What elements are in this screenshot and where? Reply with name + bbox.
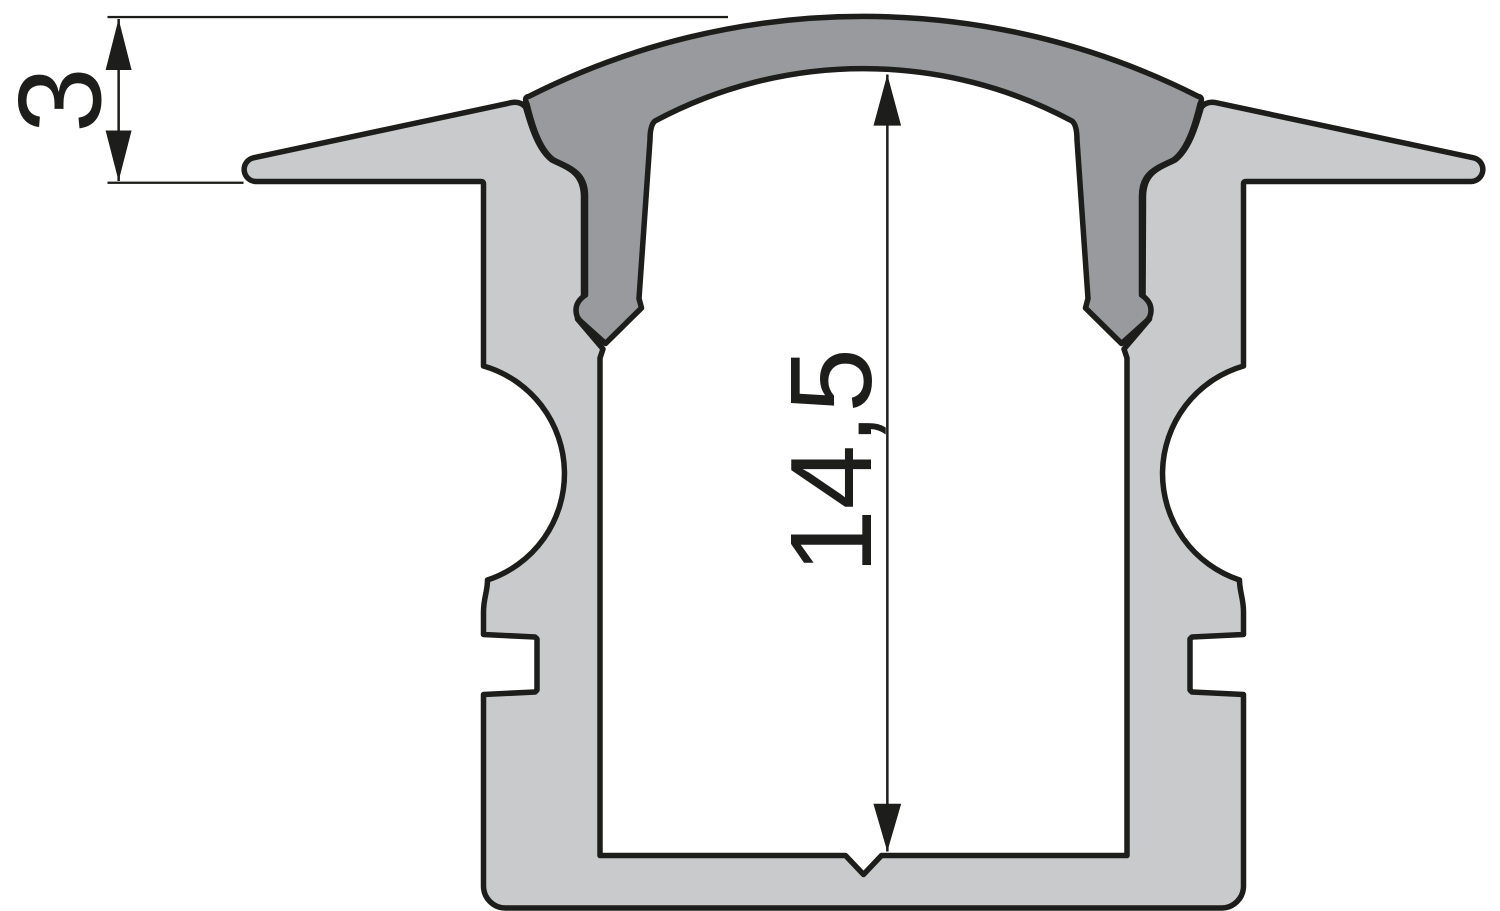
svg-text:14,5: 14,5 [766,348,896,574]
svg-text:3: 3 [0,67,127,133]
